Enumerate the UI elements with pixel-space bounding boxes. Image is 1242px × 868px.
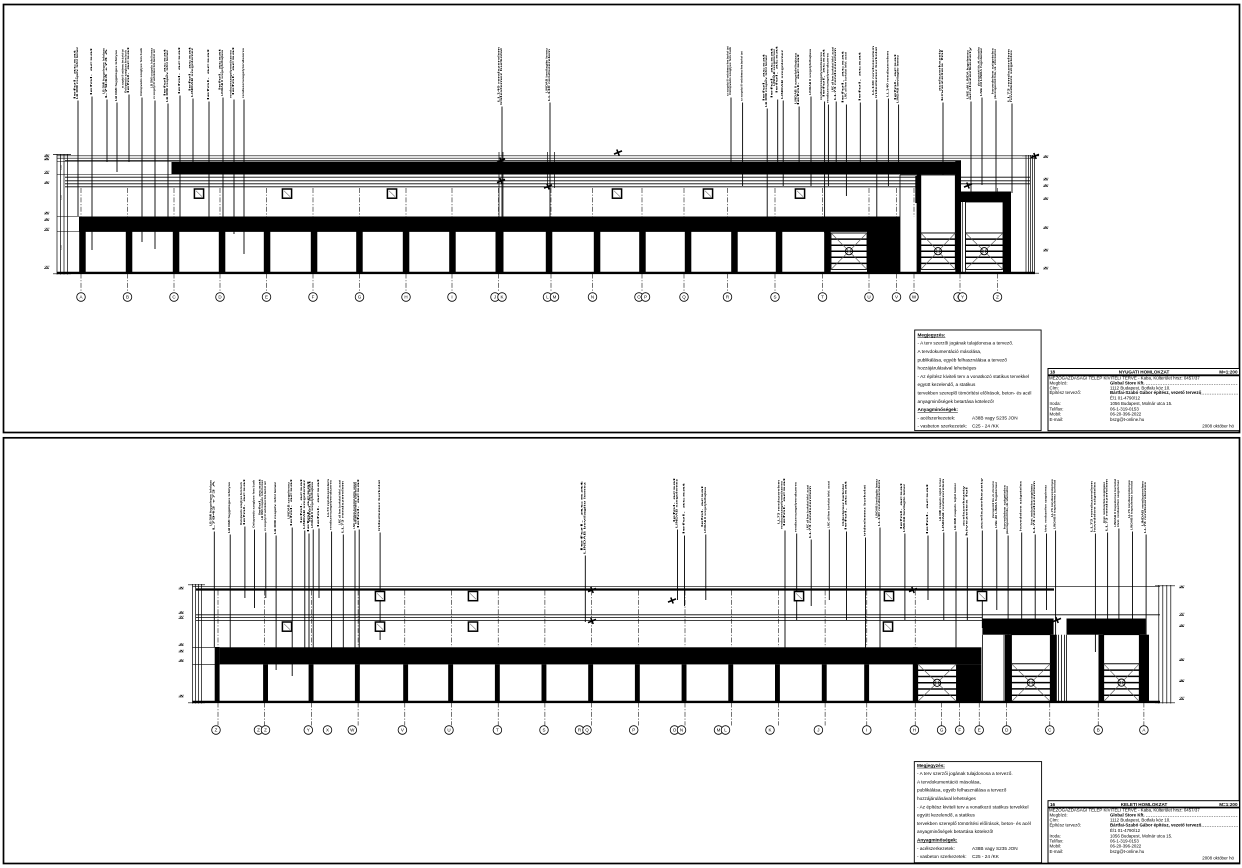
svg-text:F: F <box>312 295 315 300</box>
svg-text:LL140 rendszerelem: LL140 rendszerelem <box>885 50 889 97</box>
svg-text:A38B vagy S235 JON: A38B vagy S235 JON <box>972 415 1018 420</box>
svg-text:hovedelem szigeteles: hovedelem szigeteles <box>1019 480 1023 531</box>
svg-text:lefol. acsat: lefol. acsat <box>162 49 166 96</box>
svg-text:Oslopvedo szeglyes fem burk: Oslopvedo szeglyes fem burk <box>139 47 143 96</box>
svg-text:acelszerkezety: acelszerkezety <box>962 485 966 526</box>
svg-text:G: G <box>940 728 944 733</box>
svg-text:KELETI HOMLOKZAT: KELETI HOMLOKZAT <box>1121 802 1168 807</box>
svg-text:lefol. acsat: lefol. acsat <box>89 48 93 95</box>
svg-text:Y: Y <box>961 295 964 300</box>
svg-text:LINDAB szegolemez: LINDAB szegolemez <box>780 49 784 99</box>
svg-text:LB DMI fuggoleges lefolyas: LB DMI fuggoleges lefolyas <box>227 481 231 533</box>
svg-text:LB DMI csapelv. tejtol lemez: LB DMI csapelv. tejtol lemez <box>938 477 942 521</box>
svg-text:Bártfai-Szabó Gábor építész, v: Bártfai-Szabó Gábor építész, vezető terv… <box>1110 390 1202 395</box>
svg-text:rendszerszegelyrendszeres: rendszerszegelyrendszeres <box>825 52 829 103</box>
svg-text:Mobil:: Mobil: <box>1050 844 1062 849</box>
svg-text:Oslopvedo szeglyes fem burk: Oslopvedo szeglyes fem burk <box>252 479 256 528</box>
svg-text:3,00: 3,00 <box>60 195 63 200</box>
svg-text:hovedelem szigeteles: hovedelem szigeteles <box>990 47 994 94</box>
svg-text:O: O <box>673 728 677 733</box>
svg-text:anyagminőségek betartása kötel: anyagminőségek betartása kötelező! <box>917 829 993 834</box>
svg-text:Építész tervező:: Építész tervező: <box>1050 390 1081 395</box>
svg-text:2008 október hó: 2008 október hó <box>1202 856 1234 861</box>
svg-text:+3,00: +3,00 <box>1043 249 1049 251</box>
svg-text:3,00: 3,00 <box>60 245 63 250</box>
svg-text:- Az építész kiviteli terv a v: - Az építész kiviteli terv a vonatkozó s… <box>918 374 1030 379</box>
svg-text:Q: Q <box>682 295 686 300</box>
svg-text:+3,00: +3,00 <box>44 218 50 220</box>
svg-text:+3,00: +3,00 <box>1179 624 1185 626</box>
svg-text:O: O <box>637 295 641 300</box>
svg-text:T: T <box>821 295 824 300</box>
svg-text:xx szegelyt ill vedolemez fem: xx szegelyt ill vedolemez fem burkol tar… <box>121 49 125 88</box>
svg-text:T: T <box>496 728 499 733</box>
svg-text:A tervdokumentáció másolása,: A tervdokumentáció másolása, <box>917 779 981 784</box>
svg-text:lefol. acsat: lefol. acsat <box>841 51 845 103</box>
svg-text:M=1:200: M=1:200 <box>1219 370 1238 375</box>
svg-text:18: 18 <box>1050 370 1056 375</box>
svg-text:együtt kezelendő, a statikus: együtt kezelendő, a statikus <box>917 813 976 818</box>
svg-text:+3,00: +3,00 <box>1043 155 1049 157</box>
svg-text:Mobil:: Mobil: <box>1050 412 1062 417</box>
svg-text:C25 - 24 /KK: C25 - 24 /KK <box>972 854 1000 859</box>
svg-text:E-mail:: E-mail: <box>1050 849 1064 854</box>
svg-text:lefol. acsat: lefol. acsat <box>217 49 221 90</box>
svg-text:C25 - 24 /KK: C25 - 24 /KK <box>972 424 1000 429</box>
svg-text:A: A <box>79 295 82 300</box>
svg-text:LL140 rendszerelem: LL140 rendszerelem <box>871 45 875 95</box>
svg-text:rendszerszegelyrendszeres: rendszerszegelyrendszeres <box>241 47 245 98</box>
svg-text:J: J <box>817 728 819 733</box>
svg-text:tridexlemez burkolat: tridexlemez burkolat <box>354 482 358 524</box>
svg-text:06-20-396-2022: 06-20-396-2022 <box>1110 412 1142 417</box>
svg-text:pluszragasztott folia, vik. vi: pluszragasztott folia, vik. vihorzashoz <box>976 46 980 86</box>
svg-text:É/1 01-4790/12: É/1 01-4790/12 <box>1110 396 1141 401</box>
svg-text:kivet. rendszerfem szegolemez: kivet. rendszerfem szegolemez <box>1030 483 1034 525</box>
svg-text:LINDAB rendszerelem: LINDAB rendszerelem <box>1140 480 1144 526</box>
svg-text:+3,00: +3,00 <box>179 587 185 589</box>
svg-text:Q: Q <box>585 728 589 733</box>
svg-text:+3,00: +3,00 <box>44 228 50 230</box>
svg-text:- A terv szerzői jogának tulaj: - A terv szerzői jogának tulajdonosa a t… <box>918 341 1014 346</box>
svg-text:acelszerkezety: acelszerkezety <box>979 476 983 529</box>
svg-text:LL73 rendszerelem: LL73 rendszerelem <box>326 478 330 517</box>
svg-text:lefol. acsat: lefol. acsat <box>899 483 903 529</box>
svg-text:+3,00: +3,00 <box>1179 613 1185 615</box>
svg-text:- Az építész kiviteli terv a v: - Az építész kiviteli terv a vonatkozó s… <box>917 804 1029 809</box>
svg-text:acelszerkezety: acelszerkezety <box>937 48 941 91</box>
svg-text:+3,00: +3,00 <box>1043 226 1049 228</box>
svg-text:LB DMI csapelv. lefol lemez: LB DMI csapelv. lefol lemez <box>273 481 277 534</box>
svg-text:Anyagminőségek:: Anyagminőségek: <box>917 838 958 843</box>
svg-text:hozzájárulásával lehetséges: hozzájárulásával lehetséges <box>917 796 977 801</box>
svg-text:rendszerszegelyrendszeres: rendszerszegelyrendszeres <box>819 51 823 100</box>
svg-text:lefol. acsat: lefol. acsat <box>893 54 897 100</box>
svg-text:lefol. acsat: lefol. acsat <box>769 48 773 98</box>
svg-text:LINDAB II trapezlemez burkolat: LINDAB II trapezlemez burkolat <box>1113 479 1117 527</box>
svg-text:lefol. acsat: lefol. acsat <box>299 479 303 523</box>
svg-text:tervekben szereplő tömörítési: tervekben szereplő tömörítési előírások,… <box>918 391 1032 396</box>
svg-text:K: K <box>500 295 503 300</box>
svg-text:LINDAB II szegelyfelhajtasa: LINDAB II szegelyfelhajtasa <box>808 48 812 95</box>
svg-text:Bártfai-Szabó Gábor építész, v: Bártfai-Szabó Gábor építész, vezető terv… <box>1110 822 1202 827</box>
svg-text:LB DMI csapelv. tejtol lemez: LB DMI csapelv. tejtol lemez <box>953 482 957 530</box>
svg-text:P: P <box>632 728 635 733</box>
svg-text:U: U <box>867 295 870 300</box>
svg-text:kivet. rendszerfem szegolemez: kivet. rendszerfem szegolemez <box>1044 484 1048 532</box>
svg-text:16: 16 <box>1050 802 1056 807</box>
svg-text:tridexlemez burkolat: tridexlemez burkolat <box>841 484 845 526</box>
svg-text:+3,00: +3,00 <box>1043 178 1049 180</box>
svg-text:bszg@t-online.hu: bszg@t-online.hu <box>1110 849 1145 854</box>
svg-text:+3,00: +3,00 <box>44 266 50 268</box>
svg-text:LL73 rendszerelem: LL73 rendszerelem <box>777 479 781 524</box>
svg-text:+3,00: +3,00 <box>1179 586 1185 588</box>
svg-text:tervekben szereplő tömörítési: tervekben szereplő tömörítési előírások,… <box>917 821 1031 826</box>
svg-text:+3,00: +3,00 <box>1043 267 1049 269</box>
svg-text:kivet. rendszerfem szegolemez: kivet. rendszerfem szegolemez <box>1102 481 1106 523</box>
svg-text:P: P <box>644 295 647 300</box>
svg-text:B: B <box>126 295 129 300</box>
svg-text:E: E <box>978 728 981 733</box>
svg-text:lefol. acsat: lefol. acsat <box>700 486 704 527</box>
svg-text:xx szegelyt ill vedolemez fem: xx szegelyt ill vedolemez fem burkol tar… <box>725 46 729 96</box>
svg-text:LB DMI csapelv. lefol lemez: LB DMI csapelv. lefol lemez <box>149 47 153 88</box>
svg-text:lefol. acsat: lefol. acsat <box>308 481 312 522</box>
svg-text:lefol. acsat: lefol. acsat <box>316 479 320 527</box>
svg-text:LL73 rendszerelemes: LL73 rendszerelemes <box>1127 479 1131 518</box>
svg-text:Z: Z <box>215 728 218 733</box>
svg-text:+3,00: +3,00 <box>1043 184 1049 186</box>
svg-text:lefol. acsat: lefol. acsat <box>682 483 686 534</box>
svg-text:A38B vagy S235 JON: A38B vagy S235 JON <box>972 846 1018 851</box>
svg-text:Z: Z <box>257 728 260 733</box>
svg-text:G: G <box>358 295 362 300</box>
svg-text:H: H <box>404 295 407 300</box>
svg-text:LINDAB bevilagito lemez: LINDAB bevilagito lemez <box>544 47 548 93</box>
svg-text:M: M <box>717 728 721 733</box>
svg-text:- vasbeton szerkezetek:: - vasbeton szerkezetek: <box>917 854 967 859</box>
svg-text:M=1:200: M=1:200 <box>1219 802 1238 807</box>
svg-text:LL140 rendszerelem: LL140 rendszerelem <box>496 45 500 102</box>
svg-text:+3,00: +3,00 <box>1179 680 1185 682</box>
svg-text:publikálása, egyéb felhasználá: publikálása, egyéb felhasználása a terve… <box>918 357 1008 362</box>
svg-text:pluszragasztott folia, vik. vi: pluszragasztott folia, vik. vihorzashoz <box>991 480 995 518</box>
svg-text:LB DMI fuggoleges lefolyas: LB DMI fuggoleges lefolyas <box>114 49 118 101</box>
svg-text:LB DMI fuggoleges lefolyas: LB DMI fuggoleges lefolyas <box>209 479 213 526</box>
svg-text:LINDAB bevilagito lemez: LINDAB bevilagito lemez <box>874 478 878 518</box>
svg-text:H: H <box>913 728 916 733</box>
svg-text:+3,00: +3,00 <box>44 171 50 173</box>
svg-text:+3,00: +3,00 <box>179 616 185 618</box>
svg-text:A: A <box>1142 728 1145 733</box>
svg-text:E: E <box>265 295 268 300</box>
svg-text:hovedelem szigeteles: hovedelem szigeteles <box>1002 484 1006 529</box>
svg-text:bszg@t-online.hu: bszg@t-online.hu <box>1110 417 1145 422</box>
svg-text:X: X <box>326 728 329 733</box>
svg-text:+3,00: +3,00 <box>1179 658 1185 660</box>
svg-text:+3,00: +3,00 <box>44 154 50 156</box>
svg-text:M: M <box>553 295 557 300</box>
svg-text:LINDAB szegolemez: LINDAB szegolemez <box>287 481 291 519</box>
svg-text:V: V <box>401 728 404 733</box>
svg-text:NYUGATI HOMLOKZAT: NYUGATI HOMLOKZAT <box>1119 370 1170 375</box>
svg-text:N: N <box>680 728 683 733</box>
svg-text:F: F <box>958 728 961 733</box>
svg-text:tridexlemez burkolat: tridexlemez burkolat <box>377 480 381 531</box>
svg-text:lefol. acsat: lefol. acsat <box>925 484 929 534</box>
svg-text:anyagminőségek betartása kötel: anyagminőségek betartása kötelező! <box>918 399 994 404</box>
svg-text:lefol. acsat: lefol. acsat <box>857 52 861 101</box>
svg-text:+3,00: +3,00 <box>44 181 50 183</box>
svg-text:E-mail:: E-mail: <box>1050 417 1064 422</box>
svg-text:LINDAB II szegelyfelhajtasa: LINDAB II szegelyfelhajtasa <box>793 52 797 104</box>
svg-text:06-20-396-2022: 06-20-396-2022 <box>1110 844 1142 849</box>
svg-text:K: K <box>768 728 771 733</box>
svg-text:3,00: 3,00 <box>60 165 63 170</box>
svg-text:Oslopvedo szeglyes fem burk: Oslopvedo szeglyes fem burk <box>239 481 243 525</box>
svg-text:S: S <box>773 295 776 300</box>
svg-text:tridexlemez burkolat: tridexlemez burkolat <box>863 485 867 536</box>
svg-text:hozzájárulásával lehetséges: hozzájárulásával lehetséges <box>918 366 978 371</box>
svg-text:lefol. acsat: lefol. acsat <box>187 47 191 91</box>
svg-text:rendszerszegelyrendszeres: rendszerszegelyrendszeres <box>794 481 798 532</box>
svg-text:- acélszerkezetek:: - acélszerkezetek: <box>918 415 956 420</box>
svg-text:LNC all fem burkolat lefol. ac: LNC all fem burkolat lefol. acsat <box>806 485 810 530</box>
svg-text:Építész tervező:: Építész tervező: <box>1050 822 1081 827</box>
svg-text:Megjegyzés:: Megjegyzés: <box>917 763 945 768</box>
svg-text:- A terv szerzői jogának tulaj: - A terv szerzői jogának tulajdonosa a t… <box>917 771 1013 776</box>
svg-text:É/1 01-4790/12: É/1 01-4790/12 <box>1110 828 1141 833</box>
svg-text:2008 október hó: 2008 október hó <box>1202 424 1234 429</box>
svg-text:LB DMI fuggoleges lefolyas: LB DMI fuggoleges lefolyas <box>101 47 105 94</box>
svg-text:LNC all fem burkolat lefol. ac: LNC all fem burkolat lefol. acsat <box>831 47 835 92</box>
svg-text:lefol. acsat: lefol. acsat <box>257 479 261 515</box>
svg-text:LL73 rendszerelem: LL73 rendszerelem <box>1090 479 1094 532</box>
svg-text:- acélszerkezetek:: - acélszerkezetek: <box>917 846 955 851</box>
svg-text:J: J <box>494 295 496 300</box>
svg-text:+3,00: +3,00 <box>44 158 50 160</box>
svg-text:xx szegelyt ill vedolemez fem: xx szegelyt ill vedolemez fem burkol tar… <box>740 51 744 101</box>
svg-text:I: I <box>866 728 867 733</box>
svg-text:lefol. acsat: lefol. acsat <box>580 480 584 551</box>
svg-text:publikálása, egyéb felhasználá: publikálása, egyéb felhasználása a terve… <box>917 788 1007 793</box>
svg-text:LL73 rendszerelemes: LL73 rendszerelemes <box>1050 478 1054 517</box>
svg-text:együtt kezelendő, a statikus: együtt kezelendő, a statikus <box>918 382 977 387</box>
svg-text:LNC all fem burkolat lefol. ac: LNC all fem burkolat lefol. acsat <box>826 481 830 528</box>
svg-text:+3,00: +3,00 <box>1179 697 1185 699</box>
svg-text:LNC all fem burkolat lefol. ac: LNC all fem burkolat lefol. acsat <box>338 480 342 525</box>
svg-text:lefol. acsat: lefol. acsat <box>762 54 766 101</box>
svg-text:lefol. acsat: lefol. acsat <box>206 49 210 100</box>
svg-text:+3,00: +3,00 <box>179 695 185 697</box>
svg-text:N: N <box>591 295 594 300</box>
svg-text:Y: Y <box>307 728 310 733</box>
svg-text:S: S <box>542 728 545 733</box>
svg-text:- vasbeton szerkezetek:: - vasbeton szerkezetek: <box>918 424 968 429</box>
svg-text:rendszerszegelyrendszeres: rendszerszegelyrendszeres <box>228 49 232 98</box>
svg-text:B: B <box>1097 728 1100 733</box>
svg-text:Z: Z <box>996 295 999 300</box>
svg-text:Megjegyzés:: Megjegyzés: <box>918 332 946 337</box>
svg-text:+3,00: +3,00 <box>179 659 185 661</box>
svg-text:W: W <box>350 728 355 733</box>
svg-text:lefol. acsat: lefol. acsat <box>672 478 676 522</box>
svg-text:I: I <box>451 295 452 300</box>
svg-text:V: V <box>895 295 898 300</box>
svg-text:Anyagminőségek:: Anyagminőségek: <box>918 407 959 412</box>
svg-text:+3,00: +3,00 <box>179 650 185 652</box>
svg-text:+3,00: +3,00 <box>44 212 50 214</box>
svg-text:A tervdokumentáció másolása,: A tervdokumentáció másolása, <box>918 349 982 354</box>
svg-text:+3,00: +3,00 <box>179 643 185 645</box>
svg-text:lefol. acsat: lefol. acsat <box>177 47 181 94</box>
svg-text:LNE dil LINDA fugolemez: LNE dil LINDA fugolemez <box>965 49 969 99</box>
svg-text:+3,00: +3,00 <box>1043 197 1049 199</box>
svg-text:U: U <box>447 728 450 733</box>
svg-text:+3,00: +3,00 <box>179 611 185 613</box>
svg-text:LL73 rendszerelem: LL73 rendszerelem <box>1006 47 1010 102</box>
svg-text:lefol. acsat: lefol. acsat <box>72 50 76 99</box>
svg-text:Z: Z <box>264 728 267 733</box>
